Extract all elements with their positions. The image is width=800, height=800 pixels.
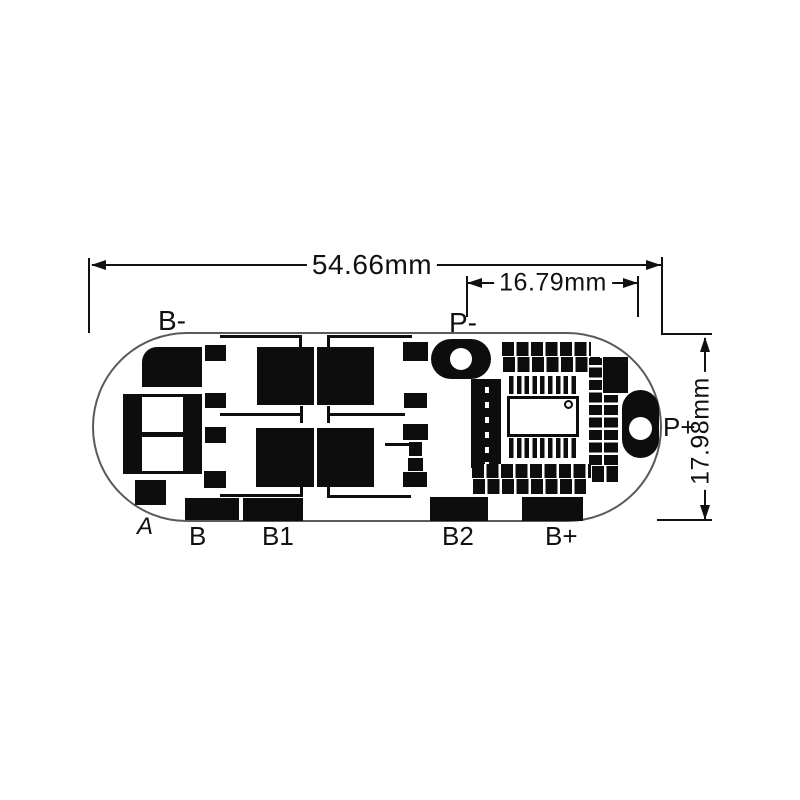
- trace: [220, 335, 302, 338]
- ic-pin1-marker: [564, 400, 573, 409]
- pad-column: [604, 395, 618, 465]
- spacing-arrow-left: [467, 278, 482, 288]
- width-extension-line-right: [661, 257, 663, 335]
- spacing-arrow-right: [623, 278, 638, 288]
- trace-tick: [327, 406, 330, 423]
- a-pad: [135, 480, 166, 505]
- p-minus-pad: [431, 339, 491, 379]
- b-minus-pad: [142, 347, 202, 387]
- pad-label-b1: B1: [262, 523, 294, 549]
- b-pad: [185, 498, 239, 520]
- mosfet-pad: [256, 428, 314, 487]
- passive-pad-row: [472, 464, 591, 478]
- smd-pad: [205, 345, 226, 361]
- trace-tick: [300, 486, 303, 497]
- pcb-dimension-drawing: 54.66mm 16.79mm 17.98mm: [0, 0, 800, 800]
- pad-column: [589, 358, 602, 465]
- width-dimension-label: 54.66mm: [307, 251, 437, 279]
- mosfet-pad: [317, 428, 374, 487]
- pad-column-gap: [485, 379, 489, 468]
- b-plus-pad: [522, 497, 583, 521]
- component-frame-footprint: [123, 394, 202, 474]
- smd-pad: [403, 424, 428, 440]
- mosfet-pad: [257, 347, 314, 405]
- height-extension-line-top: [661, 333, 712, 335]
- trace: [327, 495, 411, 498]
- pad-block: [603, 357, 628, 393]
- height-arrow-bottom: [700, 505, 710, 520]
- trace-tick: [299, 335, 302, 348]
- pad-label-b: B: [189, 523, 206, 549]
- passive-pad-row: [503, 357, 600, 372]
- smd-pad: [204, 471, 226, 488]
- trace-tick: [327, 335, 330, 348]
- smd-pad: [409, 442, 422, 456]
- smd-pad: [404, 393, 427, 408]
- mosfet-pad: [317, 347, 374, 405]
- footprint-window: [142, 397, 183, 432]
- width-arrow-right: [646, 260, 661, 270]
- width-extension-line-left: [88, 258, 90, 333]
- trace-tick: [327, 487, 330, 498]
- smd-pad: [205, 393, 226, 408]
- trace: [220, 413, 303, 416]
- trace: [327, 413, 405, 416]
- p-minus-hole: [450, 348, 472, 370]
- p-plus-pad: [622, 390, 659, 458]
- b1-pad: [243, 498, 303, 521]
- trace: [385, 443, 409, 446]
- trace: [327, 335, 412, 338]
- p-plus-hole: [629, 417, 652, 440]
- smd-pad: [205, 427, 226, 443]
- pad-label-p-minus: P-: [449, 309, 477, 337]
- smd-pad: [403, 472, 427, 487]
- pad-label-b2: B2: [442, 523, 474, 549]
- pad-label-a: A: [137, 515, 153, 539]
- trace: [220, 494, 303, 497]
- pad-label-p-plus: P+: [663, 414, 696, 440]
- b2-pad: [430, 497, 488, 521]
- smd-pad: [408, 458, 423, 471]
- height-arrow-top: [700, 337, 710, 352]
- spacing-dimension-label: 16.79mm: [494, 271, 612, 296]
- footprint-window: [142, 437, 183, 471]
- smd-pad: [403, 342, 428, 361]
- pad-label-b-plus: B+: [545, 523, 578, 549]
- pad-label-b-minus: B-: [158, 307, 186, 335]
- passive-pad-row: [502, 342, 591, 356]
- ic-pins-top: [509, 376, 579, 394]
- pad-column: [471, 379, 501, 468]
- passive-pad-row: [473, 479, 586, 494]
- ic-pins-bottom: [509, 438, 579, 458]
- trace-tick: [300, 406, 303, 423]
- width-arrow-left: [91, 260, 106, 270]
- pad-block: [592, 466, 618, 482]
